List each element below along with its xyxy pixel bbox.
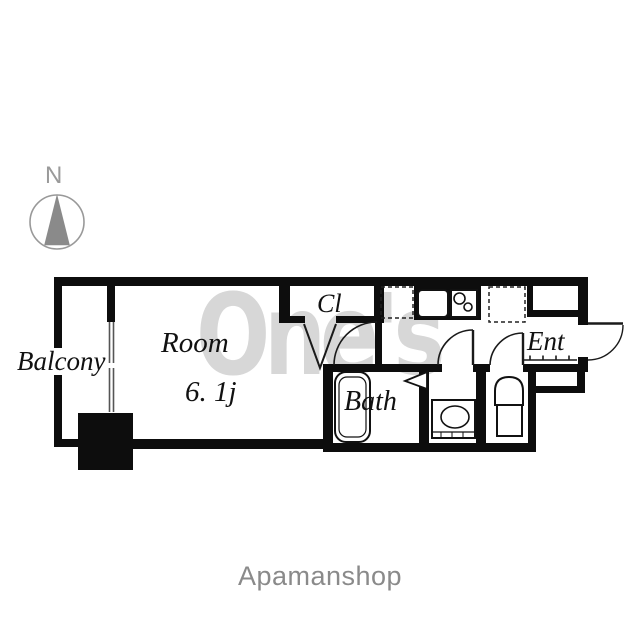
- wall-right-top: [578, 277, 588, 325]
- doors: [304, 322, 623, 368]
- refrigerator-space-dashed-icon: [381, 287, 413, 318]
- wall-toilet-right: [528, 364, 536, 448]
- entrance-label: Ent: [527, 328, 565, 355]
- closet-label: Cl: [317, 291, 342, 317]
- compass-north-label: N: [45, 162, 62, 190]
- floorplan-image: One's: [0, 0, 640, 640]
- toilet-icon: [495, 377, 523, 436]
- brand-text: Apamanshop: [0, 561, 640, 592]
- balcony-label: Balcony: [16, 348, 106, 375]
- room-label: Room: [161, 329, 229, 358]
- wall-shoebox-bottom: [527, 310, 578, 317]
- closet-folding-door-icon: [304, 324, 336, 368]
- washroom-door-arc: [438, 330, 473, 365]
- bath-door-mark-icon: [405, 372, 427, 389]
- window-joint: [106, 363, 116, 368]
- bath-label: Bath: [344, 388, 397, 416]
- room-door-arc: [334, 322, 377, 365]
- wall-bath-left: [323, 364, 333, 444]
- wall-closet-bottom-left: [285, 316, 305, 323]
- two-burner-stove-icon: [451, 290, 477, 317]
- wall-balcony-bottom: [54, 439, 82, 447]
- wall-room-bottom: [133, 439, 333, 449]
- wall-wet-bottom: [323, 443, 536, 452]
- genkan-step-line: [523, 356, 577, 361]
- wall-washroom-right: [476, 364, 486, 445]
- washer-space-dashed-icon: [489, 287, 525, 322]
- room-size-label: 6. 1j: [185, 378, 237, 407]
- compass-icon: [30, 194, 84, 249]
- washbasin-icon: [432, 400, 475, 438]
- wall-step-bottom: [528, 386, 585, 393]
- compass-needle-icon: [44, 194, 70, 246]
- wall-room-partition: [375, 322, 382, 366]
- wall-closet-right: [374, 277, 384, 323]
- wall-window-top: [107, 277, 115, 322]
- floor-plan-drawing: [0, 0, 640, 640]
- kitchen-sink-icon: [418, 290, 448, 317]
- wall-top: [54, 277, 588, 286]
- pillar-block: [78, 413, 133, 470]
- toilet-door-arc: [490, 333, 523, 365]
- entry-door-arc: [588, 325, 623, 360]
